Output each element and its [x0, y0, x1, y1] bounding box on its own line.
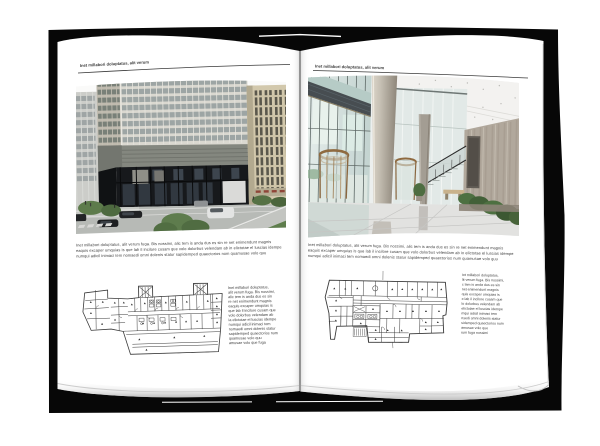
svg-text:rum fuga nossimi: rum fuga nossimi — [461, 331, 488, 335]
svg-text:amusae volo que fuga: amusae volo que fuga — [229, 341, 267, 346]
svg-text:amusae volo que: amusae volo que — [461, 326, 488, 330]
